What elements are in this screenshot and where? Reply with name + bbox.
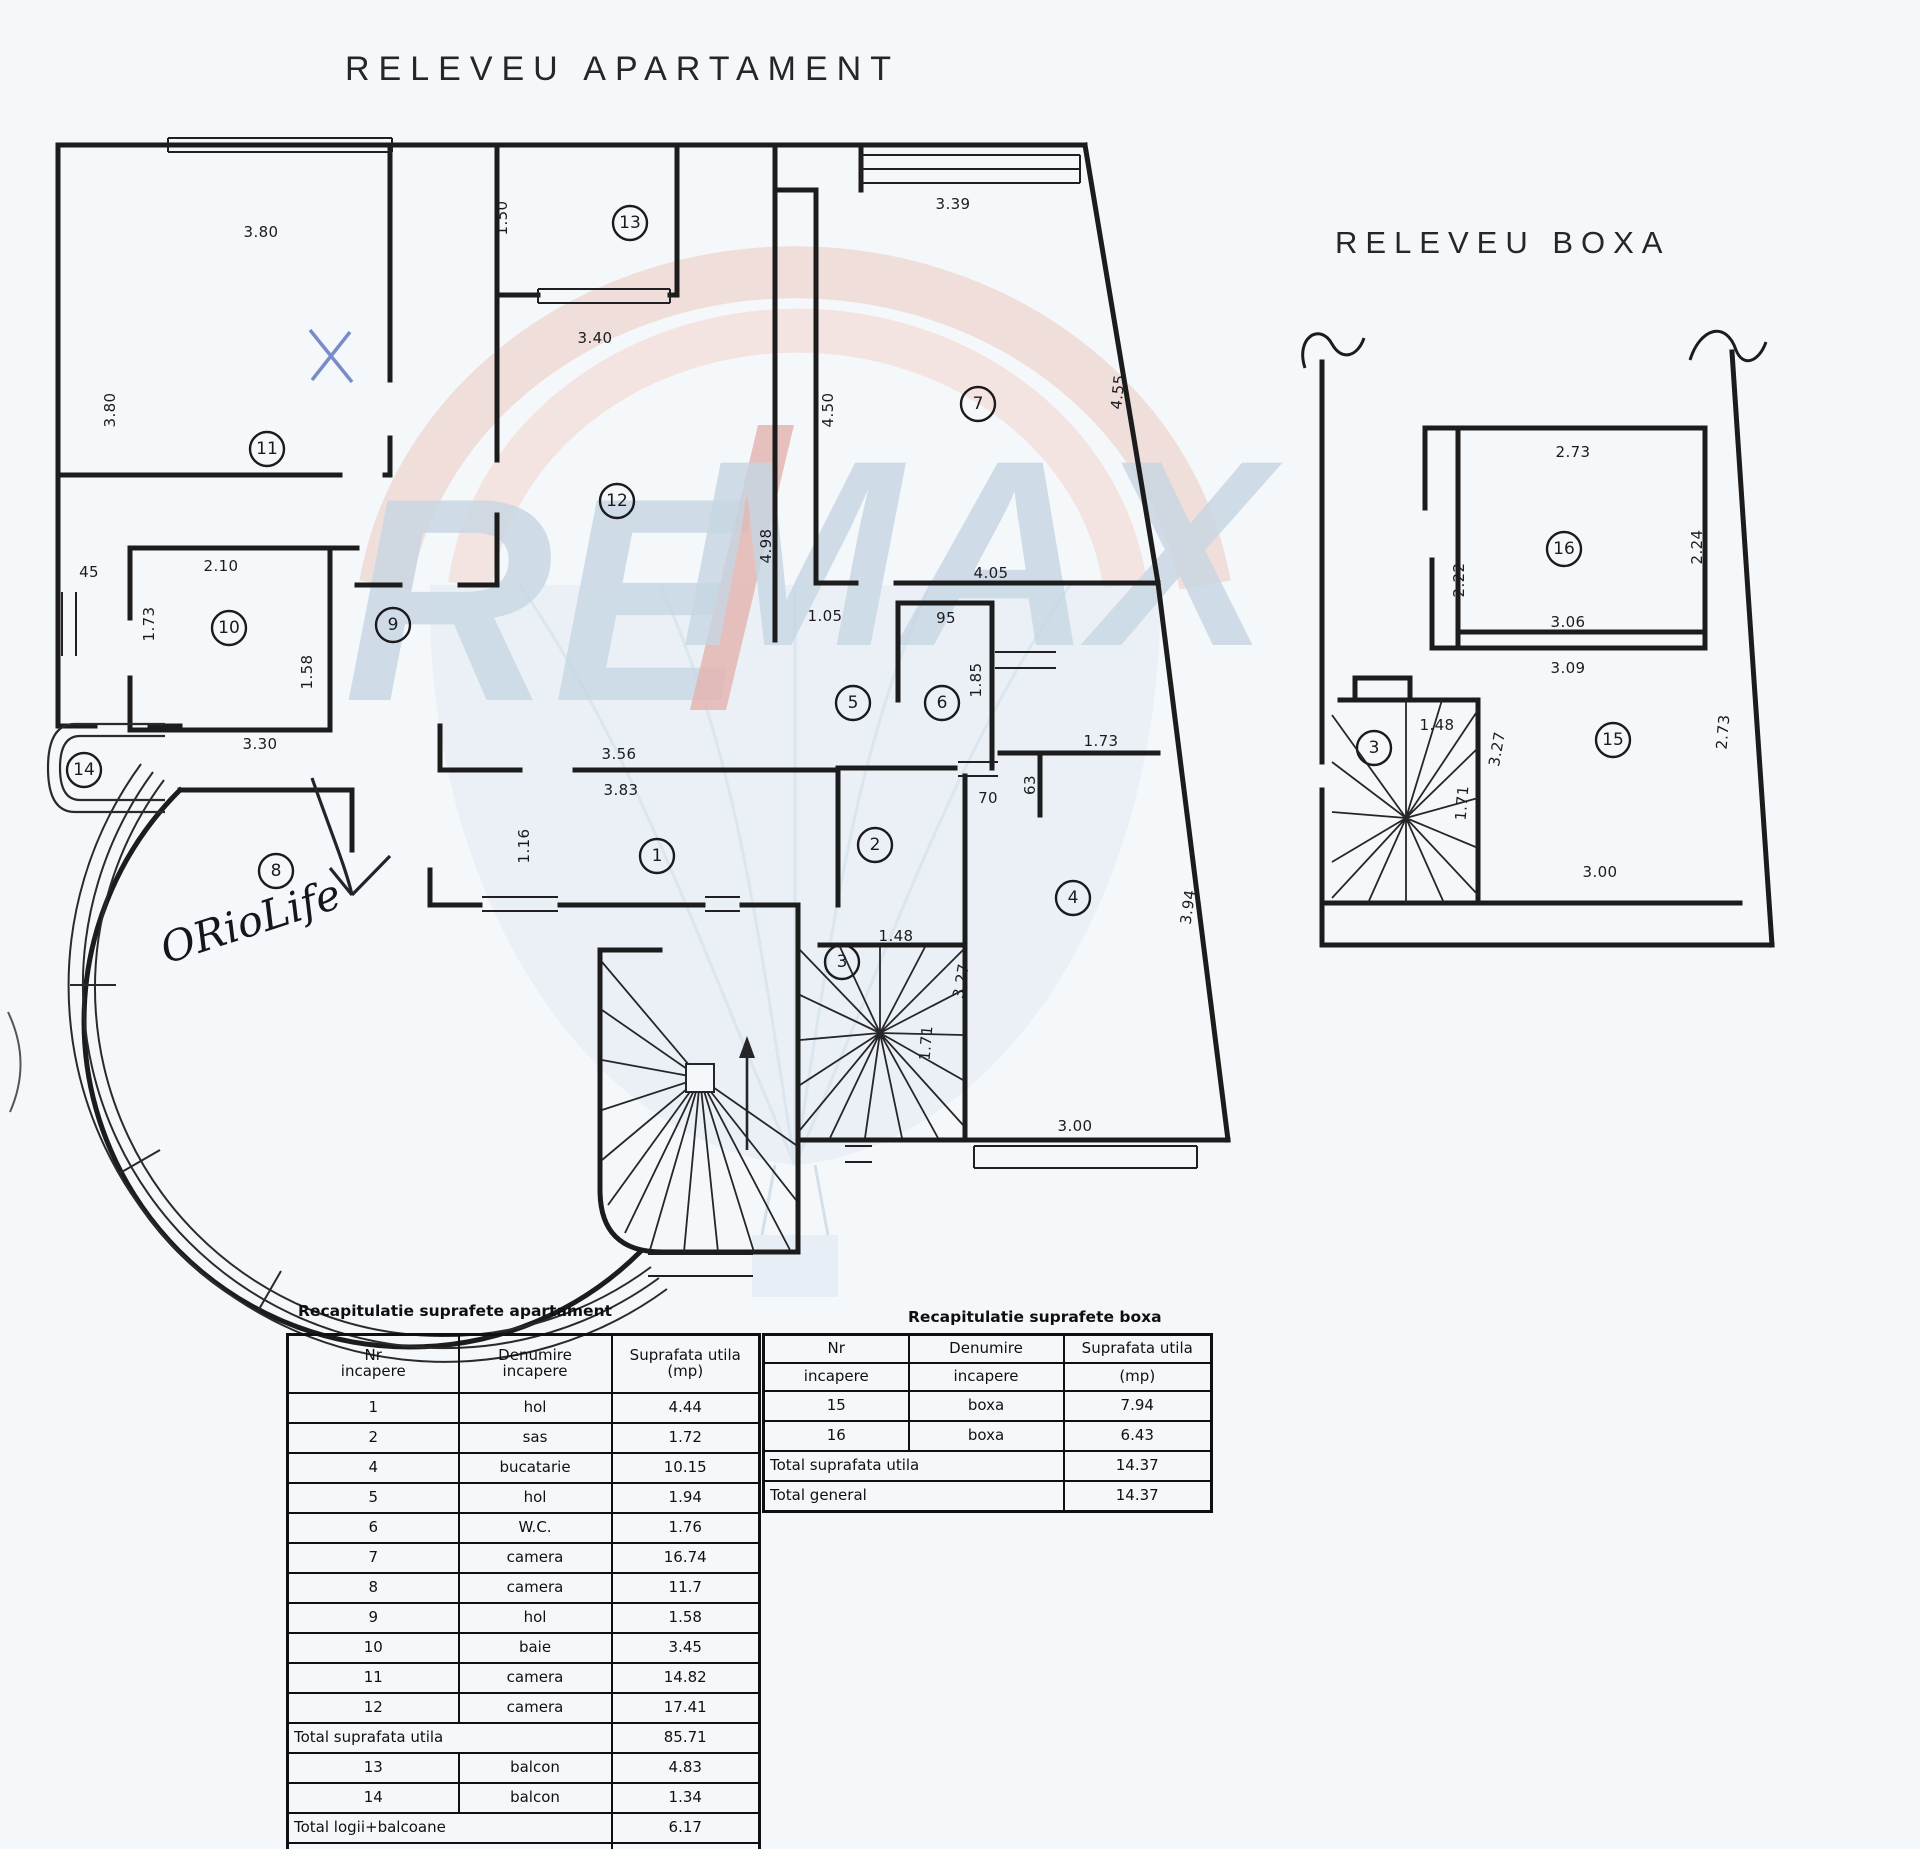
room-name-cell: boxa: [909, 1391, 1064, 1421]
table-row: 9hol1.58: [288, 1603, 760, 1633]
room-nr-cell: 8: [288, 1573, 459, 1603]
room-number: 12: [606, 491, 628, 511]
dimension-label: 1.73: [1084, 732, 1119, 750]
dimension-label: 1.85: [967, 663, 985, 698]
room-area-cell: 4.83: [612, 1753, 760, 1783]
table-row: 4bucatarie10.15: [288, 1453, 760, 1483]
table-row: Total general14.37: [764, 1481, 1212, 1512]
handwriting-text: ORioLife: [154, 869, 347, 973]
dimension-label: 1.50: [493, 201, 511, 236]
room-area-cell: 1.58: [612, 1603, 760, 1633]
room-name-cell: balcon: [459, 1783, 612, 1813]
room-name-cell: boxa: [909, 1421, 1064, 1451]
dimension-label: 1.16: [515, 829, 533, 864]
dimension-label: 4.05: [974, 564, 1009, 582]
dimension-label: 2.10: [204, 557, 239, 575]
total-label: Total general: [764, 1481, 1064, 1512]
room-name-cell: camera: [459, 1543, 612, 1573]
column-header: Denumire: [909, 1335, 1064, 1364]
balcony-14-walls: [48, 724, 165, 812]
table-row: 8camera11.7: [288, 1573, 760, 1603]
room-number: 14: [73, 760, 95, 780]
total-value: 6.17: [612, 1813, 760, 1843]
dimension-label: 3.94: [1177, 888, 1200, 925]
room-number: 9: [388, 615, 399, 635]
dimension-label: 3.39: [936, 195, 971, 213]
boxa-wall-break-marks: [1303, 331, 1766, 368]
table-row: 5hol1.94: [288, 1483, 760, 1513]
room-nr-cell: 10: [288, 1633, 459, 1663]
basket-cord: [815, 1165, 828, 1235]
dimension-label: 1.71: [916, 1025, 937, 1061]
table-row: 2sas1.72: [288, 1423, 760, 1453]
room-number: 3: [1369, 738, 1380, 758]
room-name-cell: camera: [459, 1573, 612, 1603]
table-row: 7camera16.74: [288, 1543, 760, 1573]
dimension-label: 3.56: [602, 745, 637, 763]
dimension-label: 1.58: [298, 655, 316, 690]
room-number: 11: [256, 439, 278, 459]
room-nr-cell: 9: [288, 1603, 459, 1633]
room-area-cell: 6.43: [1064, 1421, 1212, 1451]
dimension-label: 1.48: [879, 927, 914, 945]
dimension-label: 1.05: [808, 607, 843, 625]
table-row: Total suprafata utila14.37: [764, 1451, 1212, 1481]
apartment-table-title: Recapitulatie suprafete apartament: [298, 1302, 612, 1320]
boxa-plan-title: RELEVEU BOXA: [1335, 225, 1670, 260]
room-area-cell: 11.7: [612, 1573, 760, 1603]
room-area-cell: 1.34: [612, 1783, 760, 1813]
dimension-label: 2.73: [1713, 714, 1734, 750]
scanned-floor-plan-page: RE MAX RELEVEU APARTAMENT RELEVEU BOXA: [0, 0, 1920, 1849]
dimension-label: 4.98: [757, 529, 775, 564]
total-value: 85.71: [612, 1723, 760, 1753]
table-row: Total general91.88: [288, 1843, 760, 1849]
room-number: 2: [870, 835, 881, 855]
room-nr-cell: 6: [288, 1513, 459, 1543]
room-number: 15: [1602, 730, 1624, 750]
room-name-cell: baie: [459, 1633, 612, 1663]
total-label: Total logii+balcoane: [288, 1813, 612, 1843]
room-nr-cell: 7: [288, 1543, 459, 1573]
room-name-cell: bucatarie: [459, 1453, 612, 1483]
room-name-cell: sas: [459, 1423, 612, 1453]
apartment-plan-title: RELEVEU APARTAMENT: [345, 50, 900, 88]
room-name-cell: W.C.: [459, 1513, 612, 1543]
dimension-label: 3.06: [1551, 613, 1586, 631]
table-row: 13balcon4.83: [288, 1753, 760, 1783]
dimension-label: 95: [936, 609, 956, 627]
column-header: Denumireincapere: [459, 1335, 612, 1394]
room-name-cell: camera: [459, 1693, 612, 1723]
total-label: Total suprafata utila: [764, 1451, 1064, 1481]
table-row: 16boxa6.43: [764, 1421, 1212, 1451]
room-nr-cell: 4: [288, 1453, 459, 1483]
table-row: 10baie3.45: [288, 1633, 760, 1663]
column-header: Nr: [764, 1335, 909, 1364]
dimension-label: 3.00: [1058, 1117, 1093, 1135]
room-nr-cell: 14: [288, 1783, 459, 1813]
room-name-cell: camera: [459, 1663, 612, 1693]
room-area-cell: 1.72: [612, 1423, 760, 1453]
dimension-label: 2.24: [1688, 530, 1706, 565]
dimension-label: 3.30: [243, 735, 278, 753]
room-area-cell: 7.94: [1064, 1391, 1212, 1421]
dimension-label: 3.09: [1551, 659, 1586, 677]
room-name-cell: hol: [459, 1483, 612, 1513]
table-row: 14balcon1.34: [288, 1783, 760, 1813]
dimension-label: 1.71: [1452, 785, 1473, 821]
room-number: 10: [218, 618, 240, 638]
room-name-cell: balcon: [459, 1753, 612, 1783]
room-nr-cell: 1: [288, 1393, 459, 1423]
dimension-label: 3.40: [578, 329, 613, 347]
room-area-cell: 10.15: [612, 1453, 760, 1483]
dimension-label: 4.55: [1107, 374, 1129, 411]
dimension-label: 70: [978, 789, 998, 807]
column-header: (mp): [1064, 1363, 1212, 1391]
room-name-cell: hol: [459, 1393, 612, 1423]
room-nr-cell: 5: [288, 1483, 459, 1513]
column-header: incapere: [909, 1363, 1064, 1391]
column-header: Suprafata utila(mp): [612, 1335, 760, 1394]
dimension-label: 45: [79, 563, 99, 581]
room-nr-cell: 12: [288, 1693, 459, 1723]
room-nr-cell: 13: [288, 1753, 459, 1783]
table-row: 11camera14.82: [288, 1663, 760, 1693]
dimension-label: 4.50: [819, 393, 837, 428]
balloon-basket: [752, 1235, 838, 1297]
total-value: 14.37: [1064, 1481, 1212, 1512]
table-row: 1hol4.44: [288, 1393, 760, 1423]
dimension-label: 1.48: [1420, 716, 1455, 734]
column-header: Nrincapere: [288, 1335, 459, 1394]
table-row: Total logii+balcoane6.17: [288, 1813, 760, 1843]
room-number: 5: [848, 693, 859, 713]
room-nr-cell: 16: [764, 1421, 909, 1451]
room-name-cell: hol: [459, 1603, 612, 1633]
dimension-label: 3.27: [1485, 730, 1509, 768]
room-number: 3: [837, 952, 848, 972]
dimension-label: 3.80: [101, 393, 119, 428]
room-nr-cell: 15: [764, 1391, 909, 1421]
dimension-label: 63: [1021, 775, 1039, 795]
boxa-table-title: Recapitulatie suprafete boxa: [908, 1308, 1162, 1326]
column-header: Suprafata utila: [1064, 1335, 1212, 1364]
dimension-label: 3.00: [1583, 863, 1618, 881]
room-area-cell: 14.82: [612, 1663, 760, 1693]
apartment-areas-table: NrincapereDenumireincapereSuprafata util…: [286, 1333, 761, 1849]
room-number: 8: [271, 861, 282, 881]
room-number: 6: [937, 693, 948, 713]
room-area-cell: 16.74: [612, 1543, 760, 1573]
room-nr-cell: 11: [288, 1663, 459, 1693]
total-value: 14.37: [1064, 1451, 1212, 1481]
room-nr-cell: 2: [288, 1423, 459, 1453]
table-row: 12camera17.41: [288, 1693, 760, 1723]
room-area-cell: 3.45: [612, 1633, 760, 1663]
room-area-cell: 1.76: [612, 1513, 760, 1543]
page-curl-mark: [8, 1012, 21, 1112]
column-header: incapere: [764, 1363, 909, 1391]
dimension-label: 3.83: [604, 781, 639, 799]
total-value: 91.88: [612, 1843, 760, 1849]
room-number: 16: [1553, 539, 1575, 559]
table-row: 6W.C.1.76: [288, 1513, 760, 1543]
total-label: Total general: [288, 1843, 612, 1849]
room-area-cell: 1.94: [612, 1483, 760, 1513]
blue-x-mark: [310, 330, 352, 382]
table-row: 15boxa7.94: [764, 1391, 1212, 1421]
boxa-areas-table: NrDenumireSuprafata utilaincapereincaper…: [762, 1333, 1213, 1513]
room-area-cell: 17.41: [612, 1693, 760, 1723]
dimension-label: 2.73: [1556, 443, 1591, 461]
dimension-label: 1.73: [140, 607, 158, 642]
room-number: 1: [652, 846, 663, 866]
total-label: Total suprafata utila: [288, 1723, 612, 1753]
room-number: 4: [1068, 888, 1079, 908]
dimension-label: 2.22: [1450, 563, 1468, 598]
table-row: Total suprafata utila85.71: [288, 1723, 760, 1753]
room-area-cell: 4.44: [612, 1393, 760, 1423]
room-number: 7: [973, 394, 984, 414]
remax-watermark: RE MAX: [344, 272, 1284, 1297]
room-number: 13: [619, 213, 641, 233]
dimension-label: 3.80: [244, 223, 279, 241]
